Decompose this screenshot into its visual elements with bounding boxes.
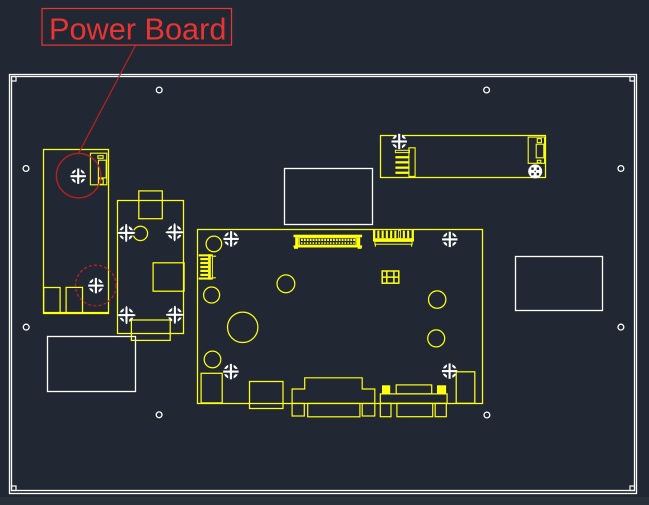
svg-text:Power Board: Power Board: [49, 12, 226, 47]
